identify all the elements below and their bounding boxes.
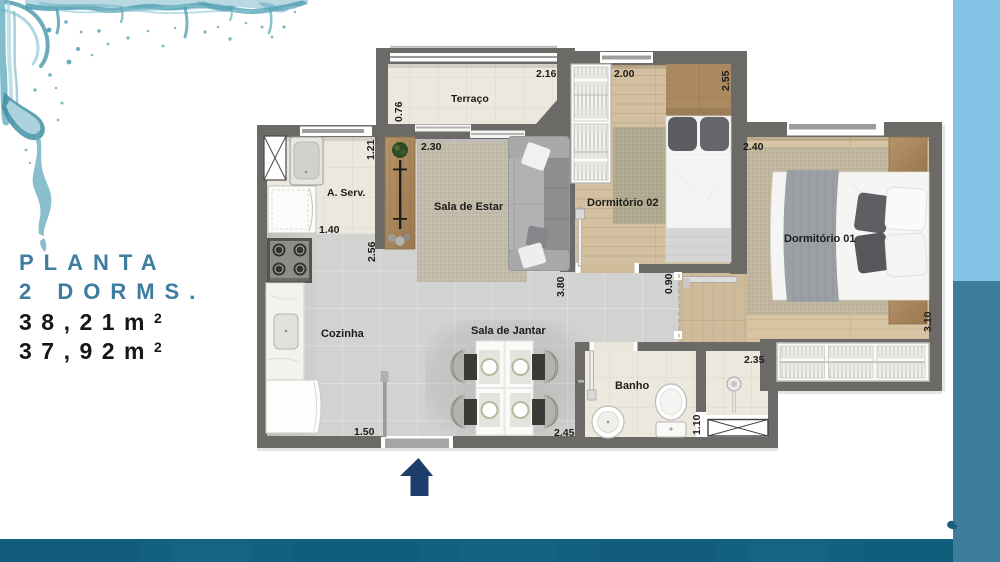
svg-text:2.45: 2.45 xyxy=(554,427,575,439)
svg-text:1.40: 1.40 xyxy=(319,224,340,236)
svg-text:2.55: 2.55 xyxy=(720,70,732,91)
svg-text:2.30: 2.30 xyxy=(421,141,442,153)
svg-text:Banho: Banho xyxy=(615,380,650,392)
svg-text:PLANTA: PLANTA xyxy=(19,250,167,275)
svg-text:2.16: 2.16 xyxy=(536,68,557,80)
svg-text:Dormitório 02: Dormitório 02 xyxy=(587,197,659,209)
svg-text:Terraço: Terraço xyxy=(451,93,489,105)
svg-text:0.76: 0.76 xyxy=(393,101,405,122)
svg-text:38,21m2: 38,21m2 xyxy=(19,309,171,335)
svg-text:3.10: 3.10 xyxy=(922,311,934,332)
svg-text:Sala de Jantar: Sala de Jantar xyxy=(471,325,546,337)
svg-text:2 DORMS.: 2 DORMS. xyxy=(19,279,205,304)
svg-text:1.21: 1.21 xyxy=(365,139,377,160)
svg-text:Dormitório 01: Dormitório 01 xyxy=(784,233,856,245)
svg-text:1.50: 1.50 xyxy=(354,426,375,438)
svg-text:2.40: 2.40 xyxy=(743,141,764,153)
svg-text:A. Serv.: A. Serv. xyxy=(327,187,365,199)
svg-text:Sala de Estar: Sala de Estar xyxy=(434,201,504,213)
svg-text:2.00: 2.00 xyxy=(614,68,635,80)
svg-text:0.90: 0.90 xyxy=(663,273,675,294)
svg-text:Cozinha: Cozinha xyxy=(321,328,365,340)
svg-text:3.80: 3.80 xyxy=(555,276,567,297)
svg-text:2.35: 2.35 xyxy=(744,354,765,366)
svg-text:2.56: 2.56 xyxy=(366,241,378,262)
svg-text:37,92m2: 37,92m2 xyxy=(19,338,171,364)
svg-text:1.10: 1.10 xyxy=(691,414,703,435)
